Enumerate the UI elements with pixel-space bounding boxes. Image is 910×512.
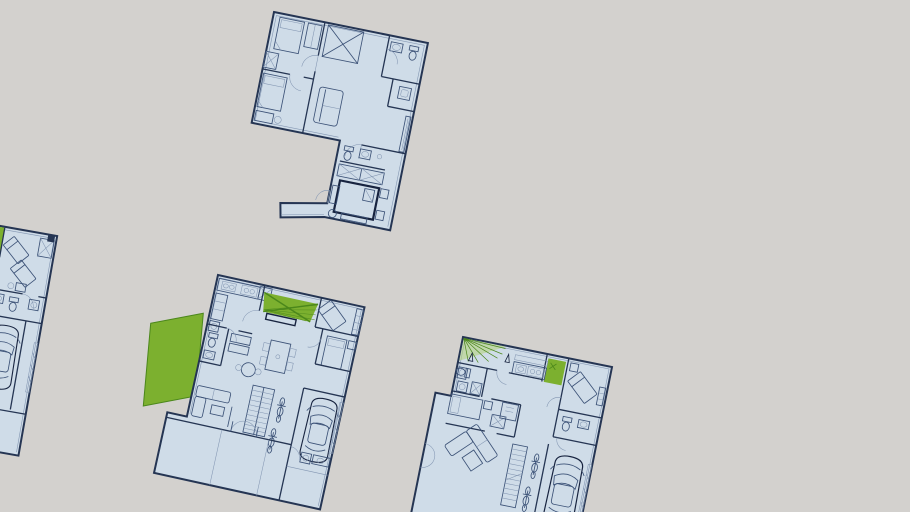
3d-viewport[interactable] <box>0 0 910 512</box>
column <box>47 234 55 242</box>
viewport-canvas[interactable] <box>0 0 910 512</box>
